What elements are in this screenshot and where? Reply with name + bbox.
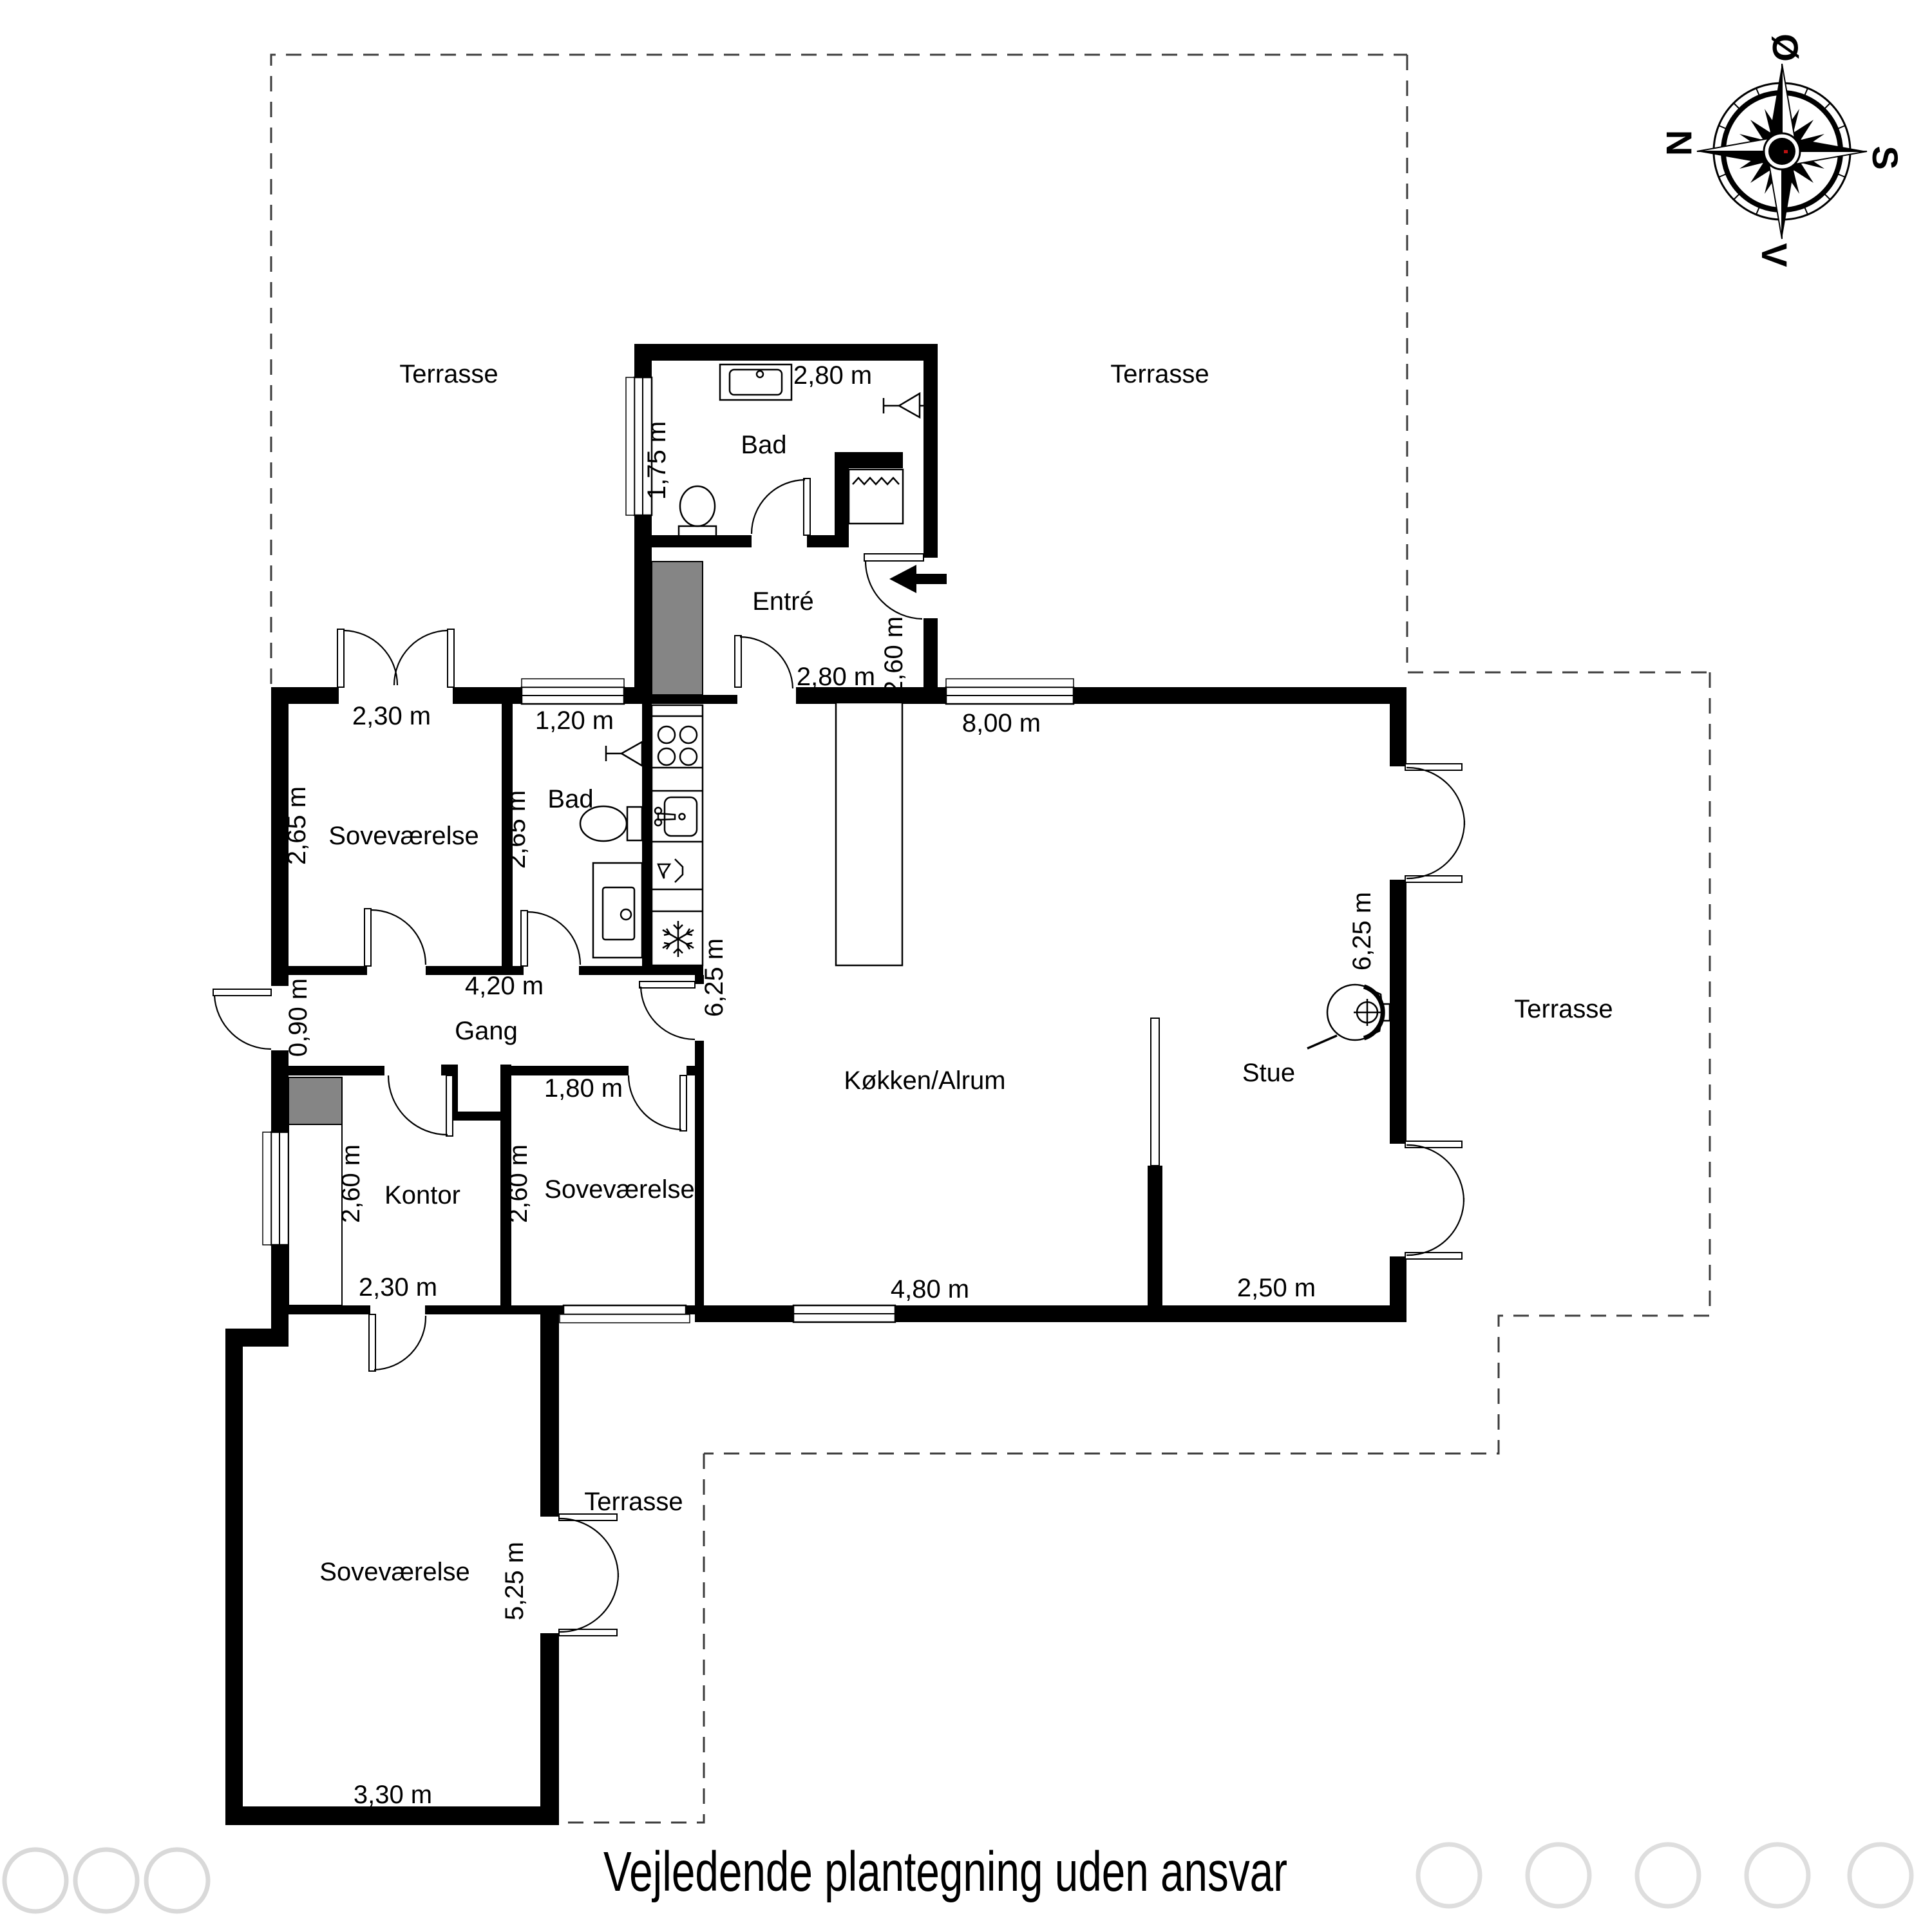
- svg-text:2,80 m: 2,80 m: [797, 663, 875, 691]
- svg-text:6,25 m: 6,25 m: [1348, 892, 1376, 971]
- svg-text:2,30 m: 2,30 m: [352, 702, 431, 730]
- svg-text:2,60 m: 2,60 m: [337, 1144, 365, 1223]
- svg-text:2,65 m: 2,65 m: [283, 786, 311, 865]
- svg-text:2,60 m: 2,60 m: [880, 616, 908, 695]
- svg-text:1,75 m: 1,75 m: [643, 421, 671, 500]
- svg-text:Ø: Ø: [1765, 33, 1806, 62]
- svg-text:Soveværelse: Soveværelse: [544, 1175, 694, 1204]
- svg-text:Gang: Gang: [455, 1017, 518, 1045]
- svg-text:2,30 m: 2,30 m: [359, 1273, 437, 1302]
- svg-text:Bad: Bad: [741, 431, 786, 459]
- svg-text:2,80 m: 2,80 m: [793, 361, 872, 390]
- svg-text:Kontor: Kontor: [384, 1181, 460, 1209]
- svg-text:2,65 m: 2,65 m: [502, 790, 531, 869]
- svg-text:Terrasse: Terrasse: [399, 360, 498, 388]
- svg-text:Terrasse: Terrasse: [1514, 995, 1613, 1023]
- svg-text:6,25 m: 6,25 m: [700, 938, 728, 1017]
- svg-text:4,80 m: 4,80 m: [891, 1275, 969, 1303]
- svg-text:1,20 m: 1,20 m: [535, 706, 614, 735]
- svg-text:5,25 m: 5,25 m: [500, 1542, 529, 1620]
- svg-text:S: S: [1865, 146, 1906, 169]
- svg-text:3,30 m: 3,30 m: [354, 1781, 432, 1809]
- svg-text:Stue: Stue: [1242, 1059, 1295, 1087]
- svg-text:V: V: [1754, 243, 1795, 267]
- svg-text:N: N: [1659, 130, 1700, 156]
- svg-text:1,80 m: 1,80 m: [544, 1074, 623, 1103]
- svg-text:Vejledende plantegning uden an: Vejledende plantegning uden ansvar: [603, 1841, 1287, 1903]
- svg-text:Køkken/Alrum: Køkken/Alrum: [844, 1066, 1005, 1095]
- svg-text:Bad: Bad: [547, 785, 593, 813]
- svg-text:Soveværelse: Soveværelse: [328, 822, 478, 850]
- svg-text:Soveværelse: Soveværelse: [319, 1558, 469, 1586]
- svg-text:2,50 m: 2,50 m: [1237, 1274, 1316, 1302]
- svg-text:Terrasse: Terrasse: [584, 1488, 683, 1516]
- svg-text:0,90 m: 0,90 m: [284, 978, 312, 1057]
- svg-text:Entré: Entré: [752, 587, 814, 616]
- svg-text:2,60 m: 2,60 m: [504, 1144, 533, 1223]
- svg-text:8,00 m: 8,00 m: [962, 709, 1041, 737]
- svg-text:4,20 m: 4,20 m: [465, 972, 544, 1000]
- svg-text:Terrasse: Terrasse: [1110, 360, 1209, 388]
